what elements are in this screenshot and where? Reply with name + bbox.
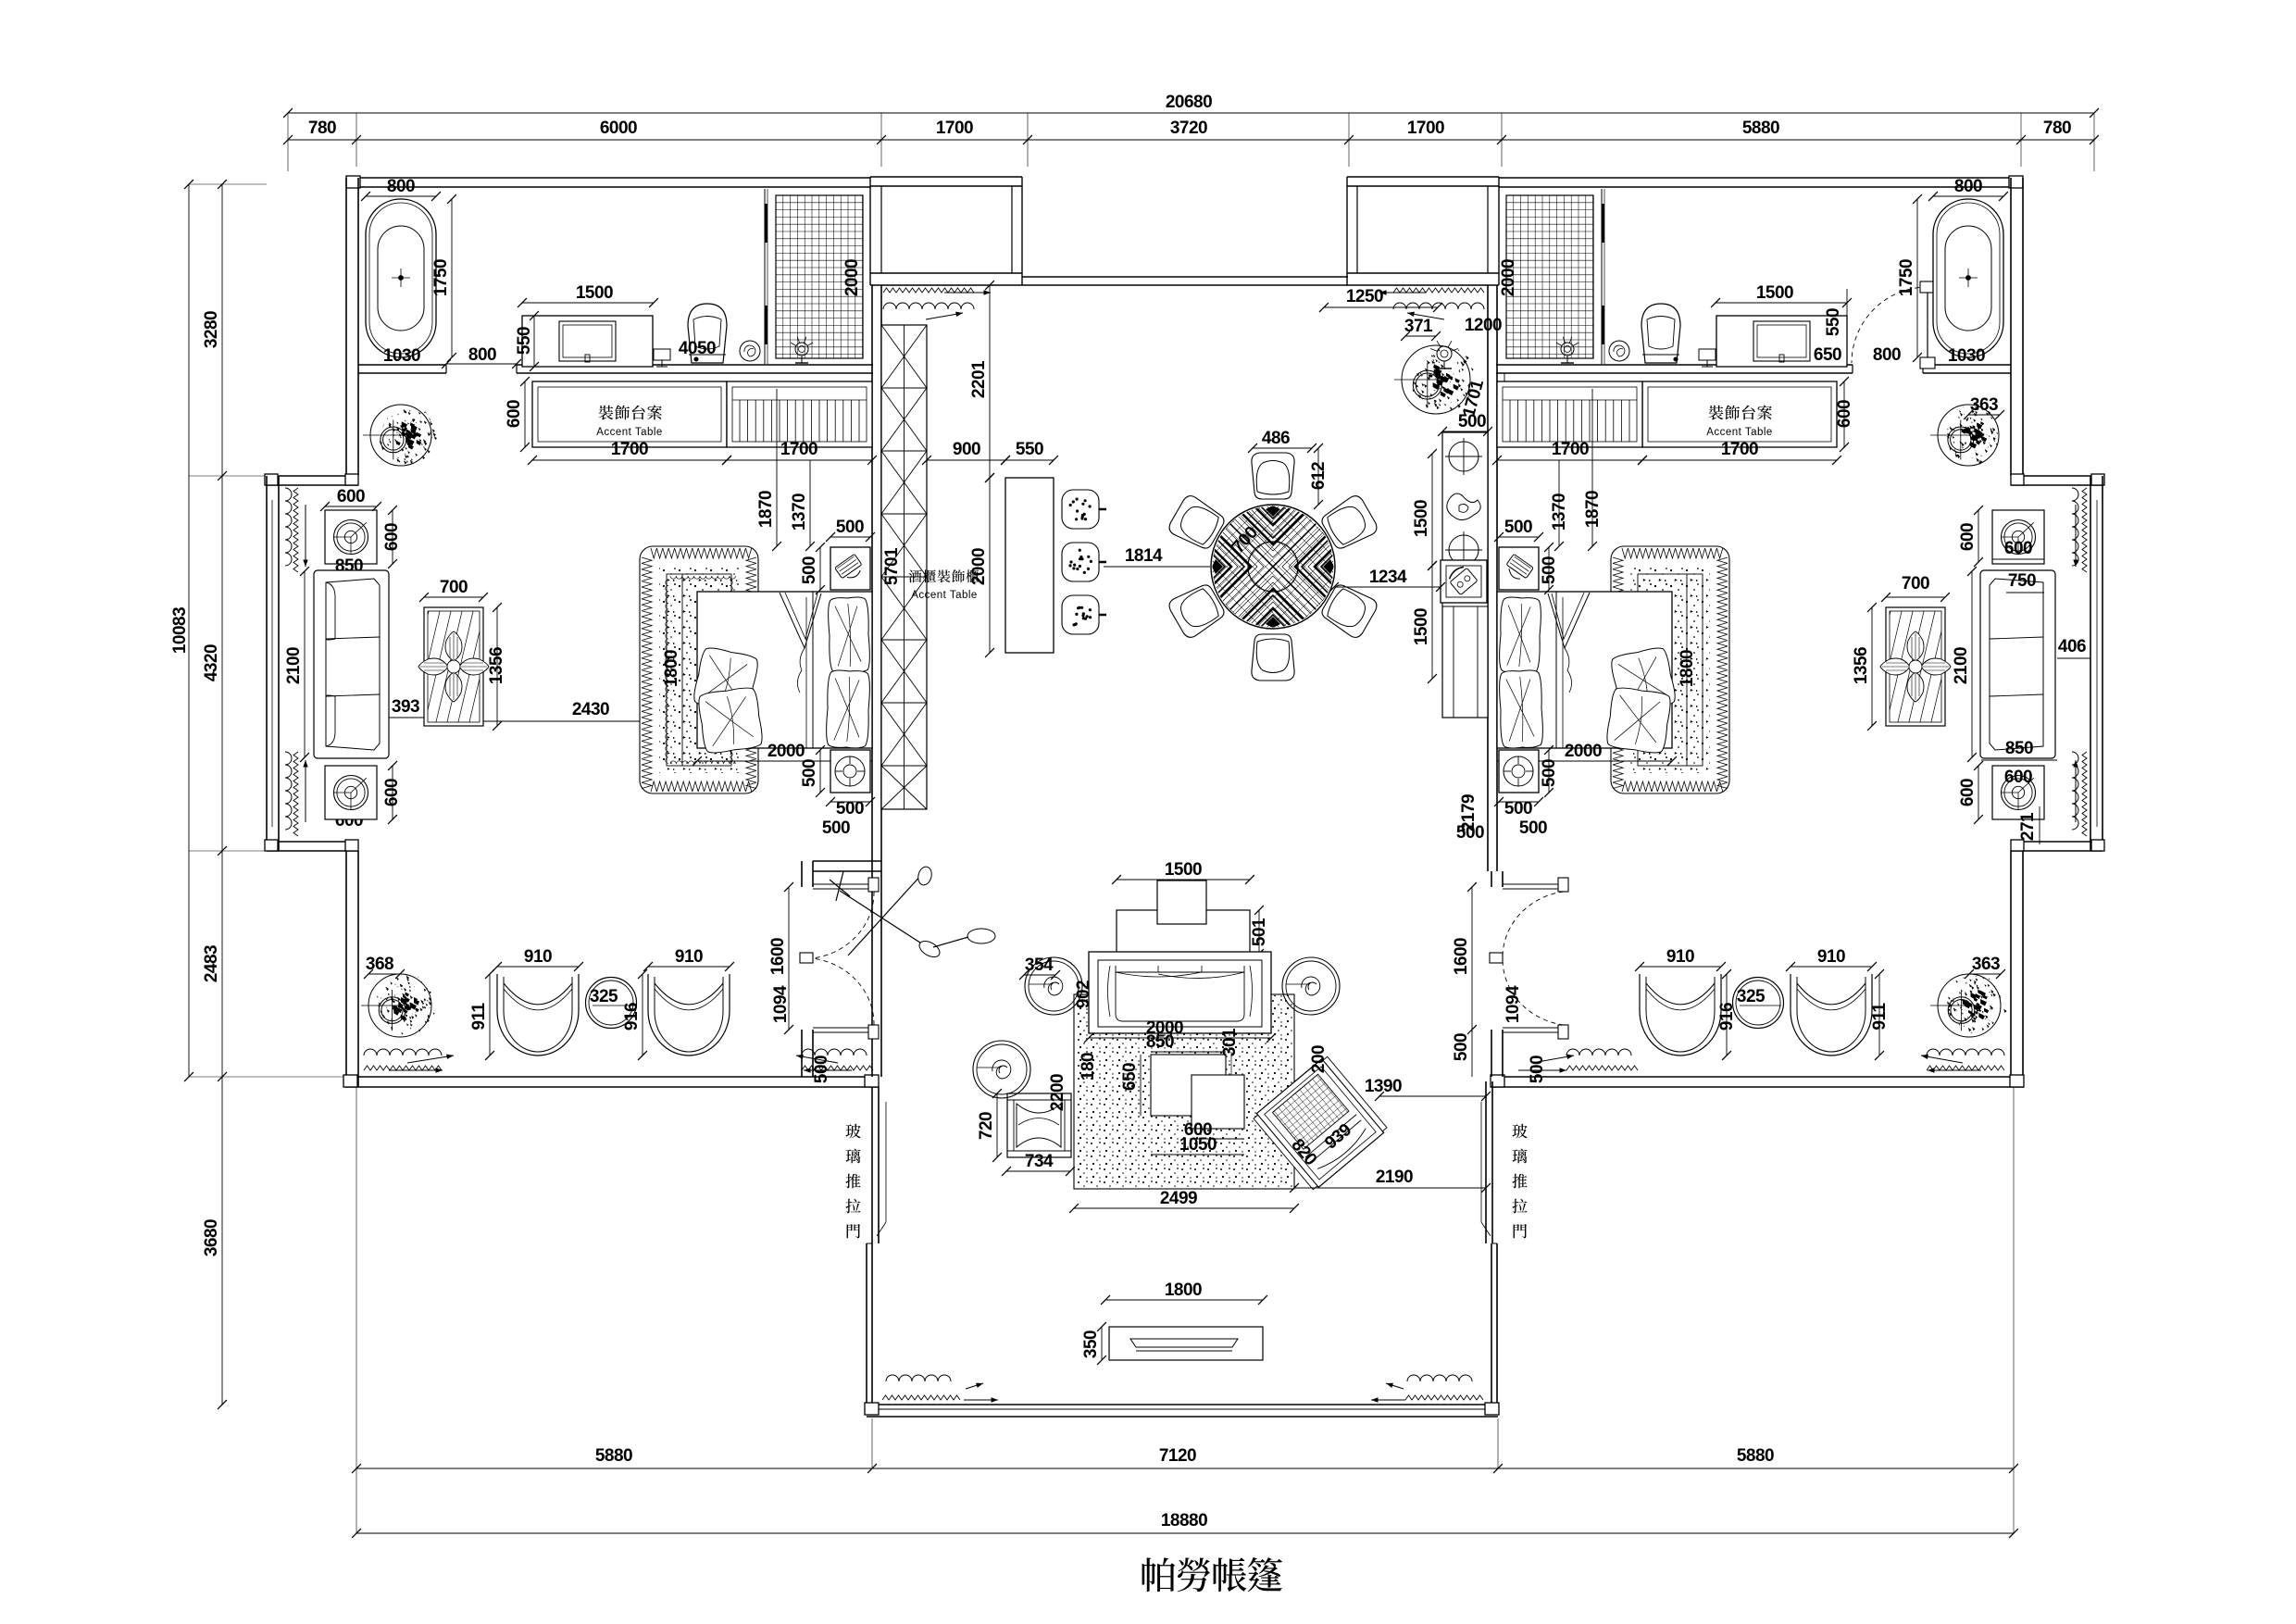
svg-text:600: 600 (382, 523, 402, 551)
svg-text:2000: 2000 (969, 548, 989, 585)
svg-text:1500: 1500 (1412, 500, 1431, 537)
svg-text:Accent Table: Accent Table (911, 590, 978, 601)
svg-text:910: 910 (1666, 947, 1694, 967)
svg-text:500: 500 (1458, 412, 1486, 431)
svg-text:500: 500 (1540, 759, 1559, 787)
svg-text:1870: 1870 (1583, 491, 1603, 528)
svg-text:550: 550 (1824, 308, 1843, 336)
svg-text:734: 734 (1025, 1152, 1054, 1171)
svg-text:500: 500 (1540, 556, 1559, 584)
svg-text:550: 550 (515, 327, 534, 355)
svg-text:3680: 3680 (202, 1219, 221, 1256)
svg-text:1500: 1500 (1165, 860, 1202, 880)
svg-text:500: 500 (1519, 818, 1547, 838)
svg-text:1390: 1390 (1365, 1077, 1402, 1096)
svg-text:180: 180 (1079, 1053, 1098, 1081)
svg-text:600: 600 (2004, 539, 2032, 558)
svg-text:500: 500 (836, 518, 864, 537)
svg-text:550: 550 (1016, 440, 1043, 459)
svg-text:1750: 1750 (1897, 259, 1916, 296)
svg-text:910: 910 (524, 947, 552, 967)
svg-text:650: 650 (1120, 1063, 1140, 1091)
svg-text:18880: 18880 (1161, 1511, 1207, 1530)
svg-text:354: 354 (1025, 956, 1054, 975)
svg-text:7120: 7120 (1159, 1446, 1196, 1466)
svg-text:1030: 1030 (383, 346, 420, 366)
svg-text:911: 911 (469, 1002, 489, 1030)
svg-text:Accent Table: Accent Table (596, 427, 663, 438)
svg-text:5880: 5880 (595, 1446, 632, 1466)
svg-text:910: 910 (1817, 947, 1845, 967)
svg-text:200: 200 (1309, 1045, 1329, 1073)
svg-text:501: 501 (1250, 918, 1269, 946)
svg-text:350: 350 (1081, 1330, 1101, 1358)
svg-text:1234: 1234 (1369, 568, 1407, 587)
svg-text:4320: 4320 (202, 644, 221, 681)
svg-text:500: 500 (800, 556, 819, 584)
svg-text:1700: 1700 (780, 440, 817, 459)
svg-text:3720: 3720 (1170, 119, 1207, 138)
svg-text:500: 500 (1528, 1056, 1547, 1083)
svg-text:1094: 1094 (1504, 985, 1523, 1023)
svg-text:500: 500 (836, 799, 864, 818)
svg-text:325: 325 (1737, 987, 1766, 1006)
svg-text:301: 301 (1220, 1028, 1240, 1056)
svg-text:720: 720 (977, 1112, 996, 1140)
svg-text:600: 600 (1958, 779, 1978, 806)
svg-text:406: 406 (2058, 637, 2086, 656)
svg-text:5880: 5880 (1742, 119, 1779, 138)
svg-text:700: 700 (440, 578, 468, 597)
svg-text:1200: 1200 (1465, 316, 1502, 335)
svg-text:600: 600 (2004, 768, 2032, 787)
svg-text:1800: 1800 (1165, 1280, 1202, 1300)
svg-text:486: 486 (1262, 429, 1290, 448)
svg-text:1094: 1094 (771, 985, 791, 1023)
svg-text:1370: 1370 (790, 493, 809, 531)
svg-text:2201: 2201 (969, 360, 989, 398)
svg-text:600: 600 (337, 487, 365, 506)
svg-text:1870: 1870 (756, 491, 776, 528)
svg-text:1600: 1600 (768, 938, 788, 975)
svg-text:2000: 2000 (1565, 742, 1602, 761)
svg-text:1500: 1500 (576, 283, 613, 303)
svg-text:1700: 1700 (1552, 440, 1589, 459)
svg-text:900: 900 (953, 440, 980, 459)
svg-text:600: 600 (382, 779, 402, 806)
svg-text:650: 650 (1814, 345, 1841, 365)
svg-text:363: 363 (1972, 955, 2000, 974)
svg-text:325: 325 (590, 987, 618, 1006)
svg-text:Accent Table: Accent Table (1706, 427, 1773, 438)
svg-text:780: 780 (2043, 119, 2071, 138)
svg-text:2483: 2483 (202, 945, 221, 982)
svg-text:600: 600 (505, 400, 524, 428)
svg-text:800: 800 (468, 345, 496, 365)
svg-text:4050: 4050 (679, 339, 716, 358)
svg-text:1700: 1700 (1721, 440, 1758, 459)
svg-text:1800: 1800 (662, 650, 681, 687)
svg-text:20680: 20680 (1166, 93, 1212, 112)
svg-text:1030: 1030 (1948, 346, 1985, 366)
svg-text:1750: 1750 (431, 259, 451, 296)
svg-text:500: 500 (800, 759, 819, 787)
svg-text:500: 500 (1504, 799, 1532, 818)
svg-text:2100: 2100 (284, 647, 304, 684)
svg-text:2499: 2499 (1160, 1189, 1197, 1208)
svg-text:850: 850 (1146, 1032, 1174, 1052)
svg-text:2100: 2100 (1952, 647, 1971, 684)
svg-text:800: 800 (387, 177, 415, 196)
svg-text:916: 916 (622, 1003, 642, 1031)
svg-text:1600: 1600 (1452, 938, 1471, 975)
svg-text:363: 363 (1970, 395, 1998, 415)
svg-text:1370: 1370 (1550, 493, 1569, 531)
svg-text:368: 368 (366, 955, 393, 974)
svg-text:5880: 5880 (1737, 1446, 1774, 1466)
svg-text:1356: 1356 (487, 647, 506, 684)
svg-text:1800: 1800 (1678, 650, 1697, 687)
svg-text:600: 600 (1958, 523, 1978, 551)
svg-text:6000: 6000 (600, 119, 637, 138)
svg-text:800: 800 (1873, 345, 1901, 365)
svg-text:612: 612 (1309, 462, 1329, 490)
svg-text:1700: 1700 (1407, 119, 1444, 138)
svg-text:911: 911 (1870, 1002, 1890, 1030)
svg-text:780: 780 (308, 119, 336, 138)
svg-text:500: 500 (822, 818, 850, 838)
svg-text:2200: 2200 (1048, 1074, 1067, 1111)
svg-text:1814: 1814 (1125, 546, 1163, 566)
svg-text:2430: 2430 (572, 700, 609, 719)
svg-text:500: 500 (1456, 823, 1484, 843)
svg-text:2190: 2190 (1376, 1168, 1413, 1187)
svg-text:800: 800 (1954, 177, 1982, 196)
svg-text:750: 750 (2008, 571, 2036, 591)
svg-text:1500: 1500 (1756, 283, 1793, 303)
svg-text:1500: 1500 (1412, 608, 1431, 645)
svg-text:10083: 10083 (170, 607, 190, 654)
svg-text:393: 393 (392, 697, 419, 717)
svg-text:2000: 2000 (767, 742, 805, 761)
svg-text:2000: 2000 (842, 259, 862, 296)
svg-text:700: 700 (1902, 574, 1929, 593)
svg-text:1700: 1700 (936, 119, 973, 138)
svg-text:910: 910 (675, 947, 703, 967)
svg-text:1700: 1700 (611, 440, 648, 459)
svg-text:271: 271 (2018, 812, 2038, 841)
svg-text:2000: 2000 (1499, 259, 1518, 296)
svg-text:1356: 1356 (1852, 647, 1871, 684)
svg-text:916: 916 (1717, 1003, 1737, 1031)
svg-text:1050: 1050 (1179, 1135, 1217, 1155)
svg-text:3280: 3280 (202, 311, 221, 348)
svg-text:5701: 5701 (882, 547, 902, 585)
svg-text:600: 600 (1835, 400, 1854, 428)
svg-text:500: 500 (812, 1056, 831, 1083)
svg-text:1250: 1250 (1346, 287, 1383, 306)
svg-text:850: 850 (2005, 739, 2033, 758)
svg-text:371: 371 (1404, 317, 1433, 336)
svg-text:500: 500 (1504, 518, 1532, 537)
svg-text:500: 500 (1452, 1033, 1471, 1061)
